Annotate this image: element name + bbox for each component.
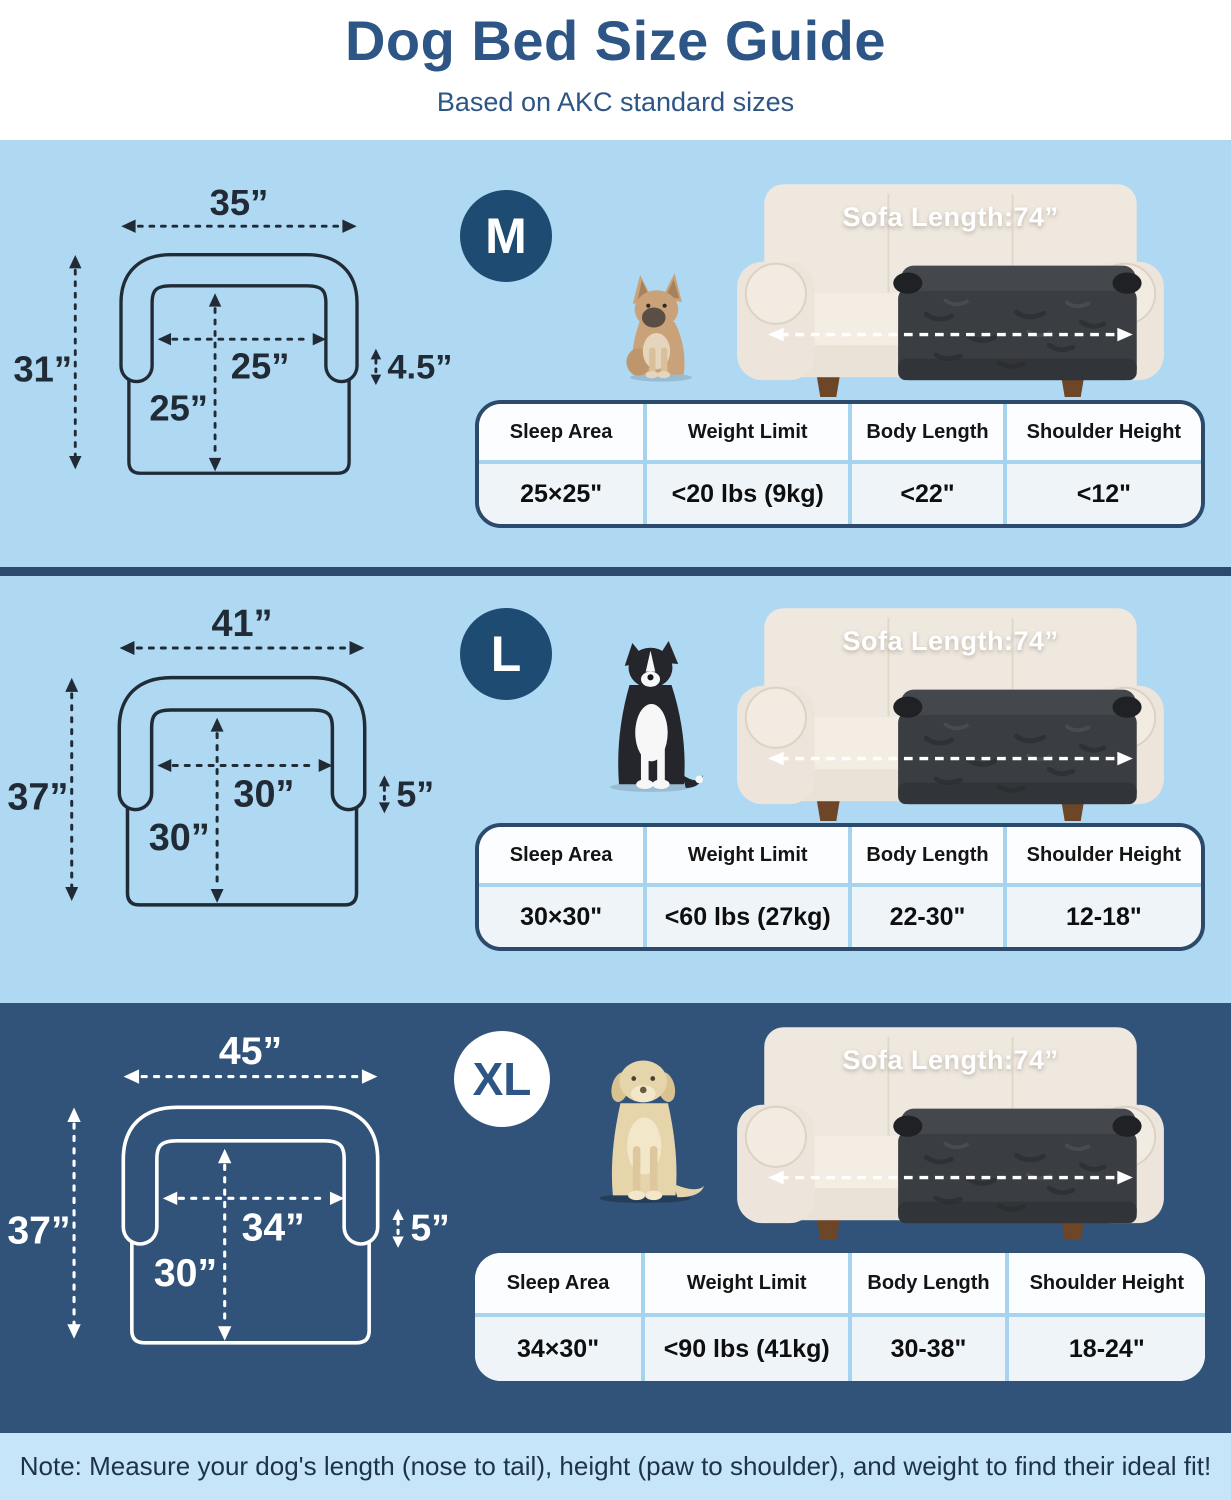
border-collie-photo xyxy=(598,639,703,792)
sofa-length-label: Sofa Length:74” xyxy=(708,626,1193,657)
outer-height-label: 37” xyxy=(7,1210,70,1253)
dog-bed-size-guide: Dog Bed Size Guide Based on AKC standard… xyxy=(0,0,1231,1500)
header: Dog Bed Size Guide Based on AKC standard… xyxy=(0,0,1231,140)
table-header-weight-limit: Weight Limit xyxy=(645,1253,852,1317)
table-header-weight-limit: Weight Limit xyxy=(647,827,852,887)
inner-width-label: 30” xyxy=(233,773,294,815)
size-table-m: Sleep Area Weight Limit Body Length Shou… xyxy=(475,400,1205,528)
table-header-shoulder-height: Shoulder Height xyxy=(1009,1253,1205,1317)
sofa-length-label: Sofa Length:74” xyxy=(708,202,1193,233)
table-value-weight-limit: <60 lbs (27kg) xyxy=(647,887,852,947)
table-value-sleep-area: 25×25" xyxy=(479,464,647,524)
outer-width-label: 35” xyxy=(210,182,269,223)
outer-height-label: 31” xyxy=(13,348,72,389)
sofa-photo-l: Sofa Length:74” xyxy=(708,602,1193,821)
table-header-weight-limit: Weight Limit xyxy=(647,404,852,464)
table-header-body-length: Body Length xyxy=(852,827,1007,887)
section-divider xyxy=(0,567,1231,576)
table-value-body-length: 30-38" xyxy=(852,1317,1008,1381)
table-value-body-length: <22" xyxy=(852,464,1007,524)
table-value-weight-limit: <90 lbs (41kg) xyxy=(645,1317,852,1381)
table-value-shoulder-height: 12-18" xyxy=(1007,887,1201,947)
size-badge-xl: XL xyxy=(454,1031,550,1127)
size-badge-m: M xyxy=(460,190,552,282)
bed-dimension-diagram-xl: 45” 37” 34” 30” 5” xyxy=(8,1033,493,1374)
sofa-photo-m: Sofa Length:74” xyxy=(708,178,1193,397)
table-header-sleep-area: Sleep Area xyxy=(475,1253,645,1317)
inner-height-label: 30” xyxy=(154,1252,217,1295)
inner-width-label: 34” xyxy=(242,1207,305,1250)
note-text: Note: Measure your dog's length (nose to… xyxy=(20,1451,1212,1482)
bolster-height-label: 4.5” xyxy=(387,348,452,386)
footer: Note: Measure your dog's length (nose to… xyxy=(0,1433,1231,1500)
page-title: Dog Bed Size Guide xyxy=(0,0,1231,73)
table-value-shoulder-height: 18-24" xyxy=(1009,1317,1205,1381)
table-value-sleep-area: 30×30" xyxy=(479,887,647,947)
table-value-weight-limit: <20 lbs (9kg) xyxy=(647,464,852,524)
table-header-body-length: Body Length xyxy=(852,1253,1008,1317)
size-section-xl: 45” 37” 34” 30” 5” XL Sofa Length:74” Sl… xyxy=(0,1003,1231,1433)
size-badge-l: L xyxy=(460,608,552,700)
size-table-xl: Sleep Area Weight Limit Body Length Shou… xyxy=(475,1253,1205,1381)
size-section-l: 41” 37” 30” 30” 5” L Sofa Length:74” Sle… xyxy=(0,576,1231,1003)
size-table-l: Sleep Area Weight Limit Body Length Shou… xyxy=(475,823,1205,951)
table-header-body-length: Body Length xyxy=(852,404,1007,464)
bed-dimension-diagram-l: 41” 37” 30” 30” 5” xyxy=(8,606,476,935)
inner-width-label: 25” xyxy=(231,345,290,386)
labrador-photo xyxy=(588,1051,708,1203)
outer-height-label: 37” xyxy=(7,776,68,818)
outer-width-label: 41” xyxy=(212,603,273,645)
table-header-shoulder-height: Shoulder Height xyxy=(1007,827,1201,887)
french-bulldog-photo xyxy=(620,273,702,382)
table-value-body-length: 22-30" xyxy=(852,887,1007,947)
table-header-sleep-area: Sleep Area xyxy=(479,827,647,887)
table-header-shoulder-height: Shoulder Height xyxy=(1007,404,1201,464)
table-value-shoulder-height: <12" xyxy=(1007,464,1201,524)
bolster-height-label: 5” xyxy=(396,774,434,814)
size-section-m: 35” 31” 25” 25” 4.5” M Sofa Length:74” S… xyxy=(0,140,1231,567)
outer-width-label: 45” xyxy=(219,1030,282,1073)
bed-dimension-diagram-m: 35” 31” 25” 25” 4.5” xyxy=(14,186,464,502)
bolster-height-label: 5” xyxy=(410,1207,449,1249)
inner-height-label: 25” xyxy=(149,388,208,429)
inner-height-label: 30” xyxy=(149,817,210,859)
sofa-photo-xl: Sofa Length:74” xyxy=(708,1021,1193,1240)
page-subtitle: Based on AKC standard sizes xyxy=(0,87,1231,118)
sofa-length-label: Sofa Length:74” xyxy=(708,1045,1193,1076)
table-header-sleep-area: Sleep Area xyxy=(479,404,647,464)
table-value-sleep-area: 34×30" xyxy=(475,1317,645,1381)
